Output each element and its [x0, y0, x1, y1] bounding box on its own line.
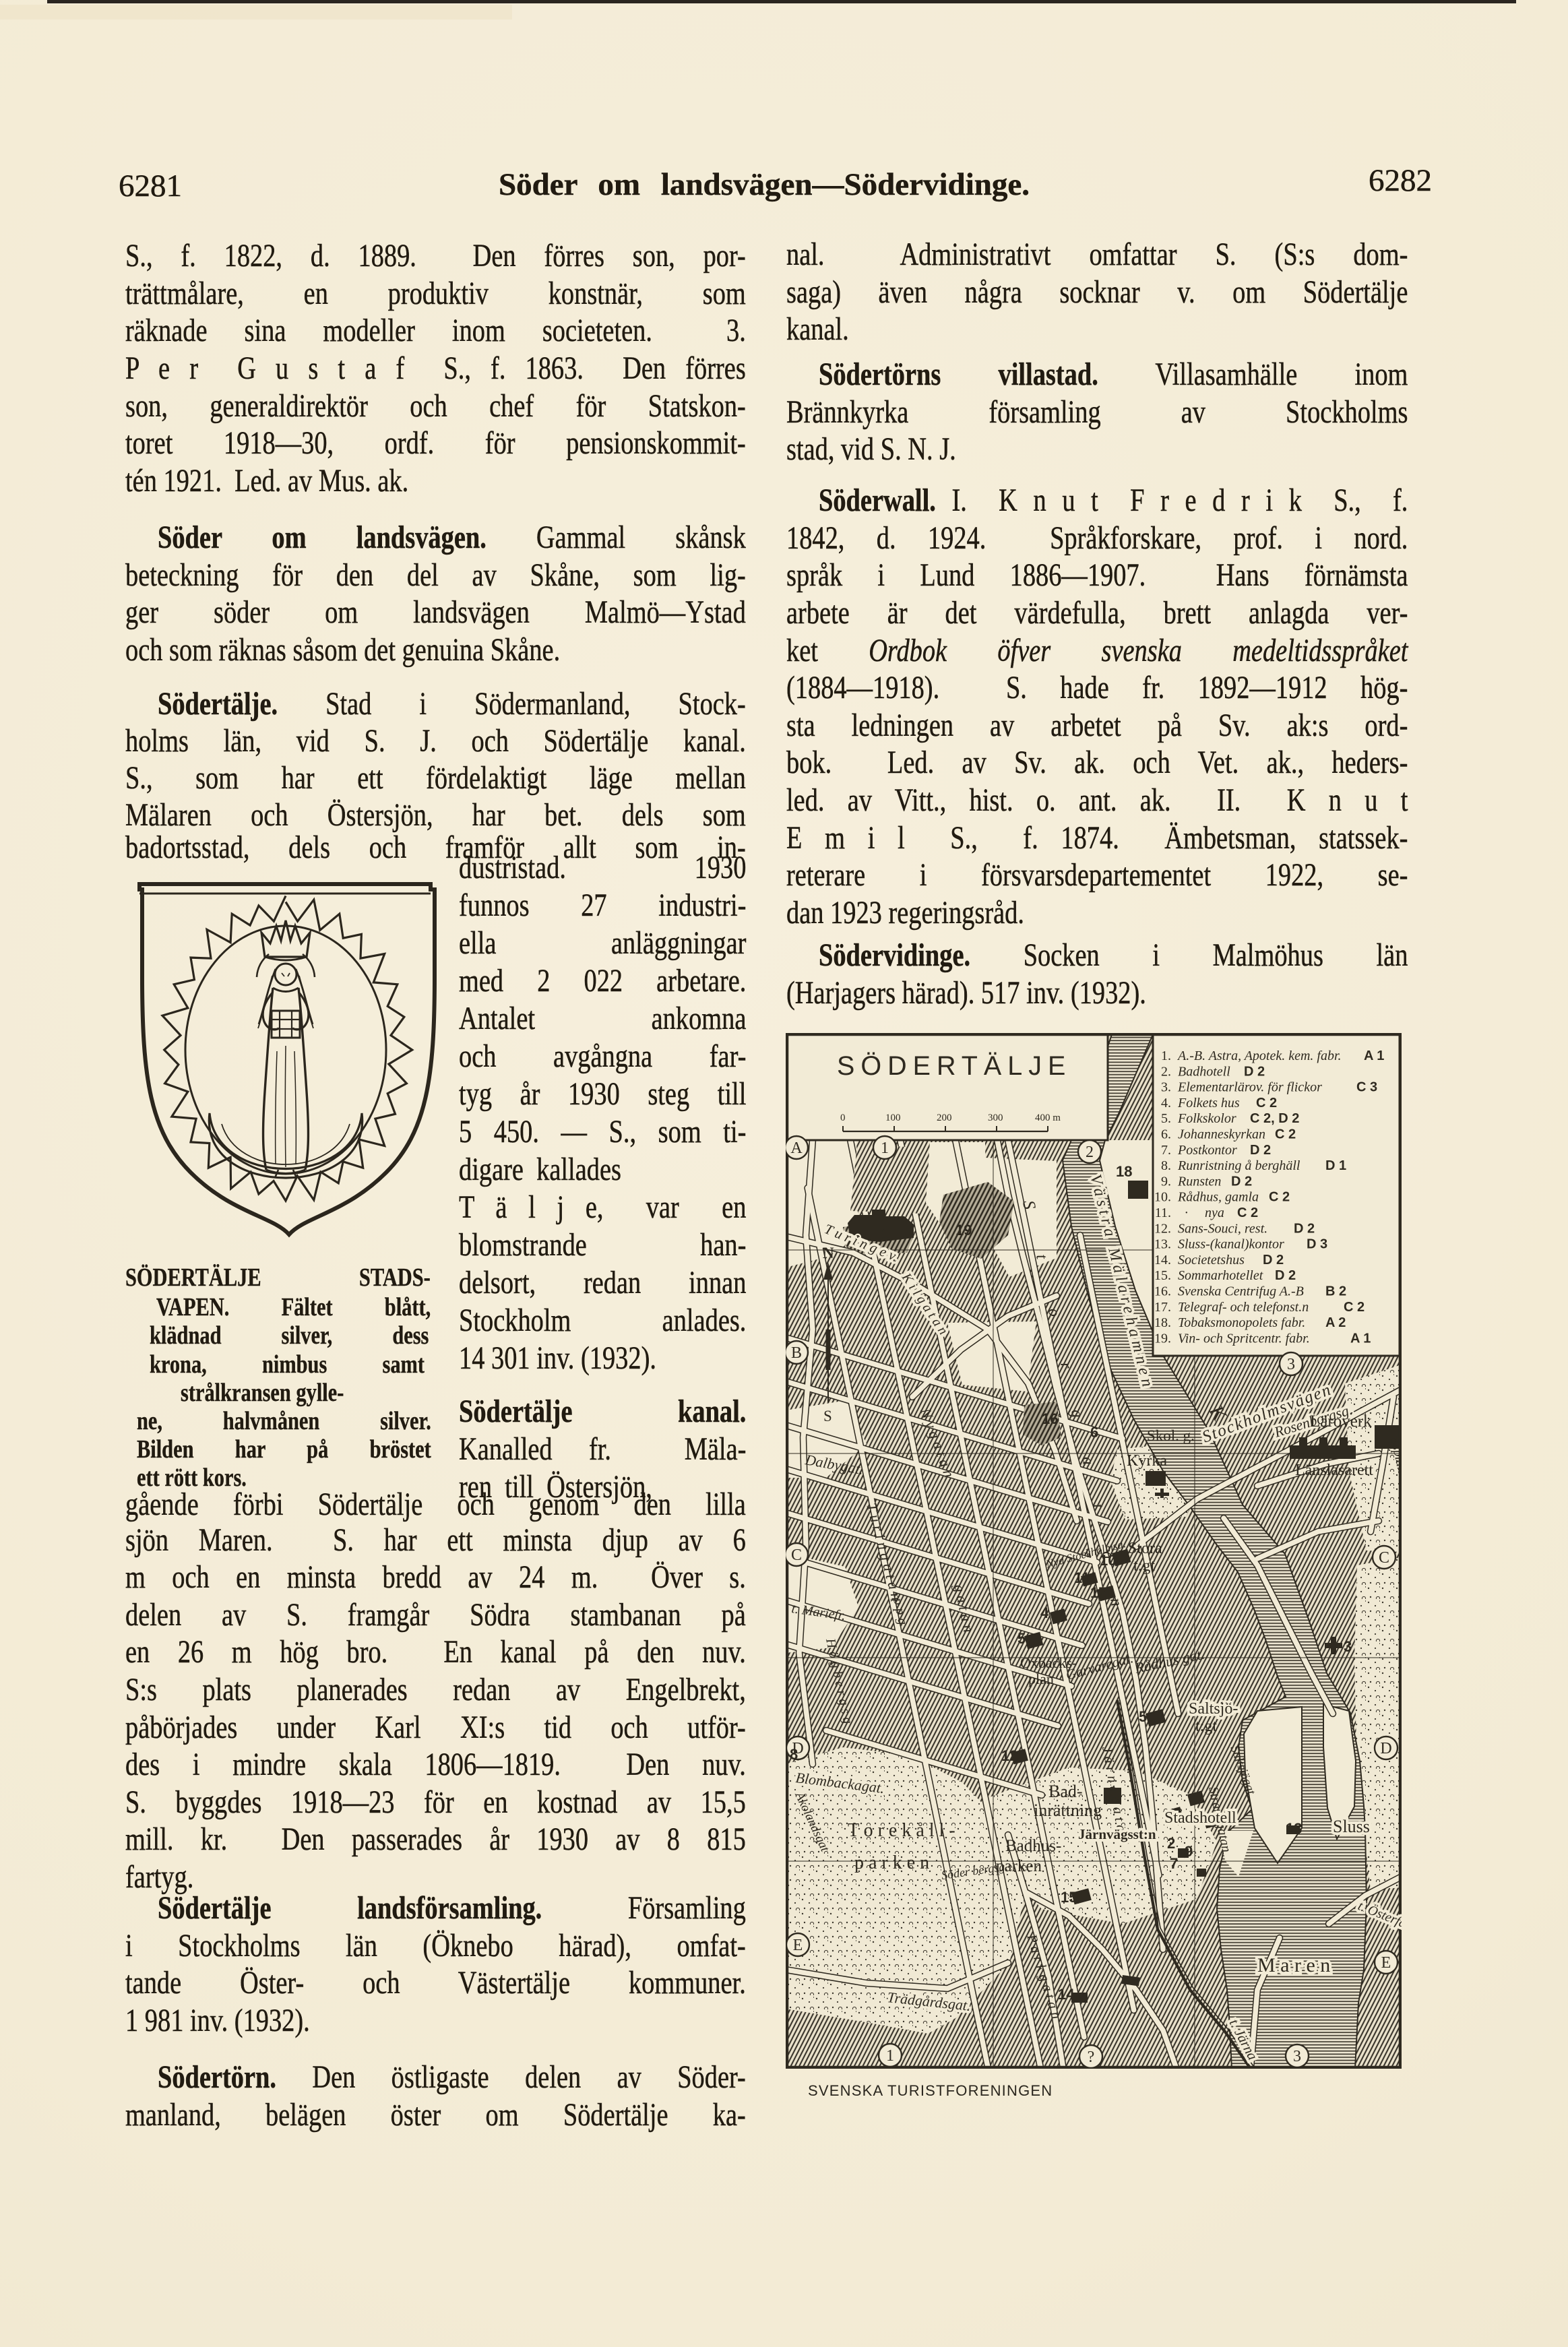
svg-text:T o r e k å l l -: T o r e k å l l -	[848, 1820, 955, 1841]
svg-text:C 3: C 3	[1356, 1080, 1377, 1095]
svg-text:12.: 12.	[1154, 1221, 1171, 1236]
svg-text:inrättning: inrättning	[1034, 1801, 1102, 1820]
svg-text:1: 1	[886, 2047, 894, 2065]
svg-text:D 1: D 1	[1325, 1158, 1346, 1173]
svg-text:D 2: D 2	[1250, 1143, 1271, 1158]
svg-text:1: 1	[881, 1139, 889, 1157]
svg-text:6: 6	[1090, 1424, 1098, 1441]
svg-text:10: 10	[1100, 1552, 1116, 1569]
svg-text:A: A	[790, 1139, 803, 1157]
svg-text:Sommarhotellet: Sommarhotellet	[1178, 1268, 1263, 1283]
svg-text:7: 7	[1170, 1855, 1178, 1872]
svg-text:D: D	[1380, 1740, 1391, 1757]
svg-text:D 2: D 2	[1294, 1221, 1315, 1236]
svg-text:15.: 15.	[1154, 1268, 1171, 1283]
svg-text:Skol. g.: Skol. g.	[1147, 1427, 1195, 1444]
svg-text:t:gt: t:gt	[1133, 1557, 1155, 1575]
svg-text:3.: 3.	[1161, 1080, 1171, 1095]
svg-text:p a r k e n: p a r k e n	[854, 1852, 929, 1873]
svg-text:Folkskolor: Folkskolor	[1177, 1111, 1236, 1126]
svg-text:C: C	[791, 1546, 802, 1564]
svg-text:A.-B. Astra, Apotek. kem. fabr: A.-B. Astra, Apotek. kem. fabr.	[1177, 1049, 1342, 1063]
svg-text:Badhotell: Badhotell	[1178, 1064, 1230, 1079]
svg-text:5: 5	[1017, 1630, 1026, 1647]
svg-text:11: 11	[1074, 1569, 1090, 1586]
svg-text:C 2, D 2: C 2, D 2	[1250, 1111, 1299, 1126]
svg-text:14.: 14.	[1154, 1253, 1171, 1268]
svg-text:B: B	[791, 1344, 802, 1362]
svg-text:Läroverk: Läroverk	[1310, 1412, 1372, 1431]
svg-text:D 2: D 2	[1231, 1174, 1252, 1189]
svg-text:1: 1	[881, 1226, 889, 1243]
svg-text:3: 3	[1344, 1638, 1352, 1655]
svg-text:D 3: D 3	[1307, 1237, 1327, 1252]
svg-text:15: 15	[1061, 1889, 1077, 1906]
svg-text:18: 18	[1116, 1163, 1132, 1180]
svg-text:11.: 11.	[1155, 1206, 1171, 1220]
svg-text:300: 300	[988, 1113, 1003, 1123]
svg-text:SÖDERTÄLJE: SÖDERTÄLJE	[837, 1051, 1071, 1081]
svg-text:17.: 17.	[1154, 1300, 1171, 1315]
svg-text:Postkontor: Postkontor	[1177, 1143, 1237, 1158]
svg-text:3: 3	[1293, 2048, 1301, 2065]
svg-text:400 m: 400 m	[1035, 1113, 1061, 1123]
svg-text:D 2: D 2	[1244, 1064, 1265, 1079]
svg-text:E: E	[793, 1937, 803, 1954]
svg-text:N: N	[823, 1245, 834, 1261]
svg-text:Folkets hus: Folkets hus	[1177, 1096, 1240, 1110]
svg-text:Sans-Souci, rest.: Sans-Souci, rest.	[1178, 1221, 1267, 1236]
svg-text:18.: 18.	[1154, 1315, 1171, 1330]
svg-text:C 2: C 2	[1256, 1096, 1277, 1110]
svg-text:plan: plan	[1028, 1670, 1054, 1687]
svg-text:S: S	[823, 1408, 832, 1425]
svg-text:Kyrka: Kyrka	[1127, 1452, 1167, 1470]
svg-text:Stadshotell: Stadshotell	[1164, 1809, 1236, 1827]
svg-text:Sluss-(kanal)kontor: Sluss-(kanal)kontor	[1178, 1237, 1284, 1252]
svg-text:14: 14	[1058, 1986, 1075, 2003]
svg-text:Badhus-: Badhus-	[1005, 1837, 1061, 1855]
svg-text:Svenska Centrifug A.-B: Svenska Centrifug A.-B	[1178, 1284, 1304, 1299]
svg-text:Stora: Stora	[1128, 1540, 1162, 1557]
svg-text:A 1: A 1	[1350, 1331, 1371, 1346]
svg-text:D 2: D 2	[1275, 1268, 1296, 1283]
svg-text:Saltsjö-: Saltsjö-	[1189, 1700, 1238, 1718]
svg-text:9: 9	[1185, 1843, 1193, 1860]
svg-text:t:gt: t:gt	[1195, 1718, 1217, 1735]
svg-text:C: C	[1379, 1549, 1389, 1567]
svg-text:0: 0	[840, 1113, 846, 1123]
svg-text:Telegraf- och telefonst.n: Telegraf- och telefonst.n	[1178, 1300, 1309, 1315]
svg-text:2: 2	[1167, 1835, 1175, 1852]
svg-text:D 2: D 2	[1263, 1253, 1284, 1268]
svg-text:8.: 8.	[1161, 1158, 1171, 1173]
svg-text:13: 13	[1286, 1820, 1302, 1837]
svg-text:Societetshus: Societetshus	[1178, 1253, 1245, 1268]
svg-text:17: 17	[1090, 1584, 1106, 1601]
svg-text:E: E	[1381, 1954, 1391, 1972]
svg-text:· nya: · nya	[1178, 1206, 1224, 1220]
svg-text:3: 3	[1287, 1356, 1295, 1373]
svg-text:C 2: C 2	[1269, 1190, 1290, 1205]
svg-text:19: 19	[955, 1222, 972, 1239]
svg-text:Runristning å berghäll: Runristning å berghäll	[1177, 1158, 1300, 1173]
svg-text:12: 12	[1001, 1747, 1017, 1764]
svg-text:13.: 13.	[1154, 1237, 1171, 1252]
svg-text:5: 5	[1139, 1708, 1147, 1725]
svg-text:16.: 16.	[1154, 1284, 1171, 1299]
svg-text:Sluss: Sluss	[1333, 1817, 1370, 1836]
svg-text:100: 100	[885, 1113, 901, 1123]
svg-text:9.: 9.	[1161, 1174, 1171, 1189]
svg-text:Oxbacks-: Oxbacks-	[1020, 1654, 1077, 1671]
svg-text:Runsten: Runsten	[1177, 1174, 1221, 1189]
svg-text:B 2: B 2	[1325, 1284, 1346, 1299]
svg-text:4: 4	[1040, 1604, 1049, 1621]
svg-text:Vin- och Spritcentr. fabr.: Vin- och Spritcentr. fabr.	[1178, 1331, 1310, 1346]
svg-text:200: 200	[937, 1113, 952, 1123]
svg-text:Järnvägsst:n: Järnvägsst:n	[1078, 1826, 1156, 1842]
svg-text:Johanneskyrkan: Johanneskyrkan	[1178, 1127, 1265, 1142]
svg-text:C 2: C 2	[1275, 1127, 1296, 1142]
svg-text:5.: 5.	[1161, 1111, 1171, 1126]
svg-text:4.: 4.	[1161, 1096, 1171, 1110]
svg-text:2: 2	[1086, 1144, 1094, 1161]
svg-text:?: ?	[1088, 2048, 1095, 2066]
svg-text:A 2: A 2	[1325, 1315, 1346, 1330]
svg-text:2.: 2.	[1161, 1064, 1171, 1079]
svg-text:Rådhus, gamla: Rådhus, gamla	[1177, 1190, 1259, 1205]
svg-text:M a r e n: M a r e n	[1257, 1954, 1330, 1976]
svg-text:16: 16	[1042, 1410, 1058, 1427]
svg-text:Länslasarett: Länslasarett	[1295, 1462, 1373, 1479]
svg-text:A 1: A 1	[1364, 1049, 1384, 1063]
svg-text:Tobaksmonopolets fabr.: Tobaksmonopolets fabr.	[1178, 1315, 1305, 1330]
svg-text:6.: 6.	[1161, 1127, 1171, 1142]
svg-text:10.: 10.	[1154, 1190, 1171, 1205]
svg-text:1.: 1.	[1161, 1049, 1171, 1063]
svg-text:19.: 19.	[1154, 1331, 1171, 1346]
svg-text:7.: 7.	[1161, 1143, 1171, 1158]
svg-text:Elementarlärov. för flickor: Elementarlärov. för flickor	[1177, 1080, 1322, 1095]
svg-text:Bad-: Bad-	[1048, 1782, 1083, 1801]
svg-text:8: 8	[790, 1746, 798, 1763]
svg-text:C 2: C 2	[1344, 1300, 1365, 1315]
svg-text:C 2: C 2	[1237, 1206, 1258, 1220]
